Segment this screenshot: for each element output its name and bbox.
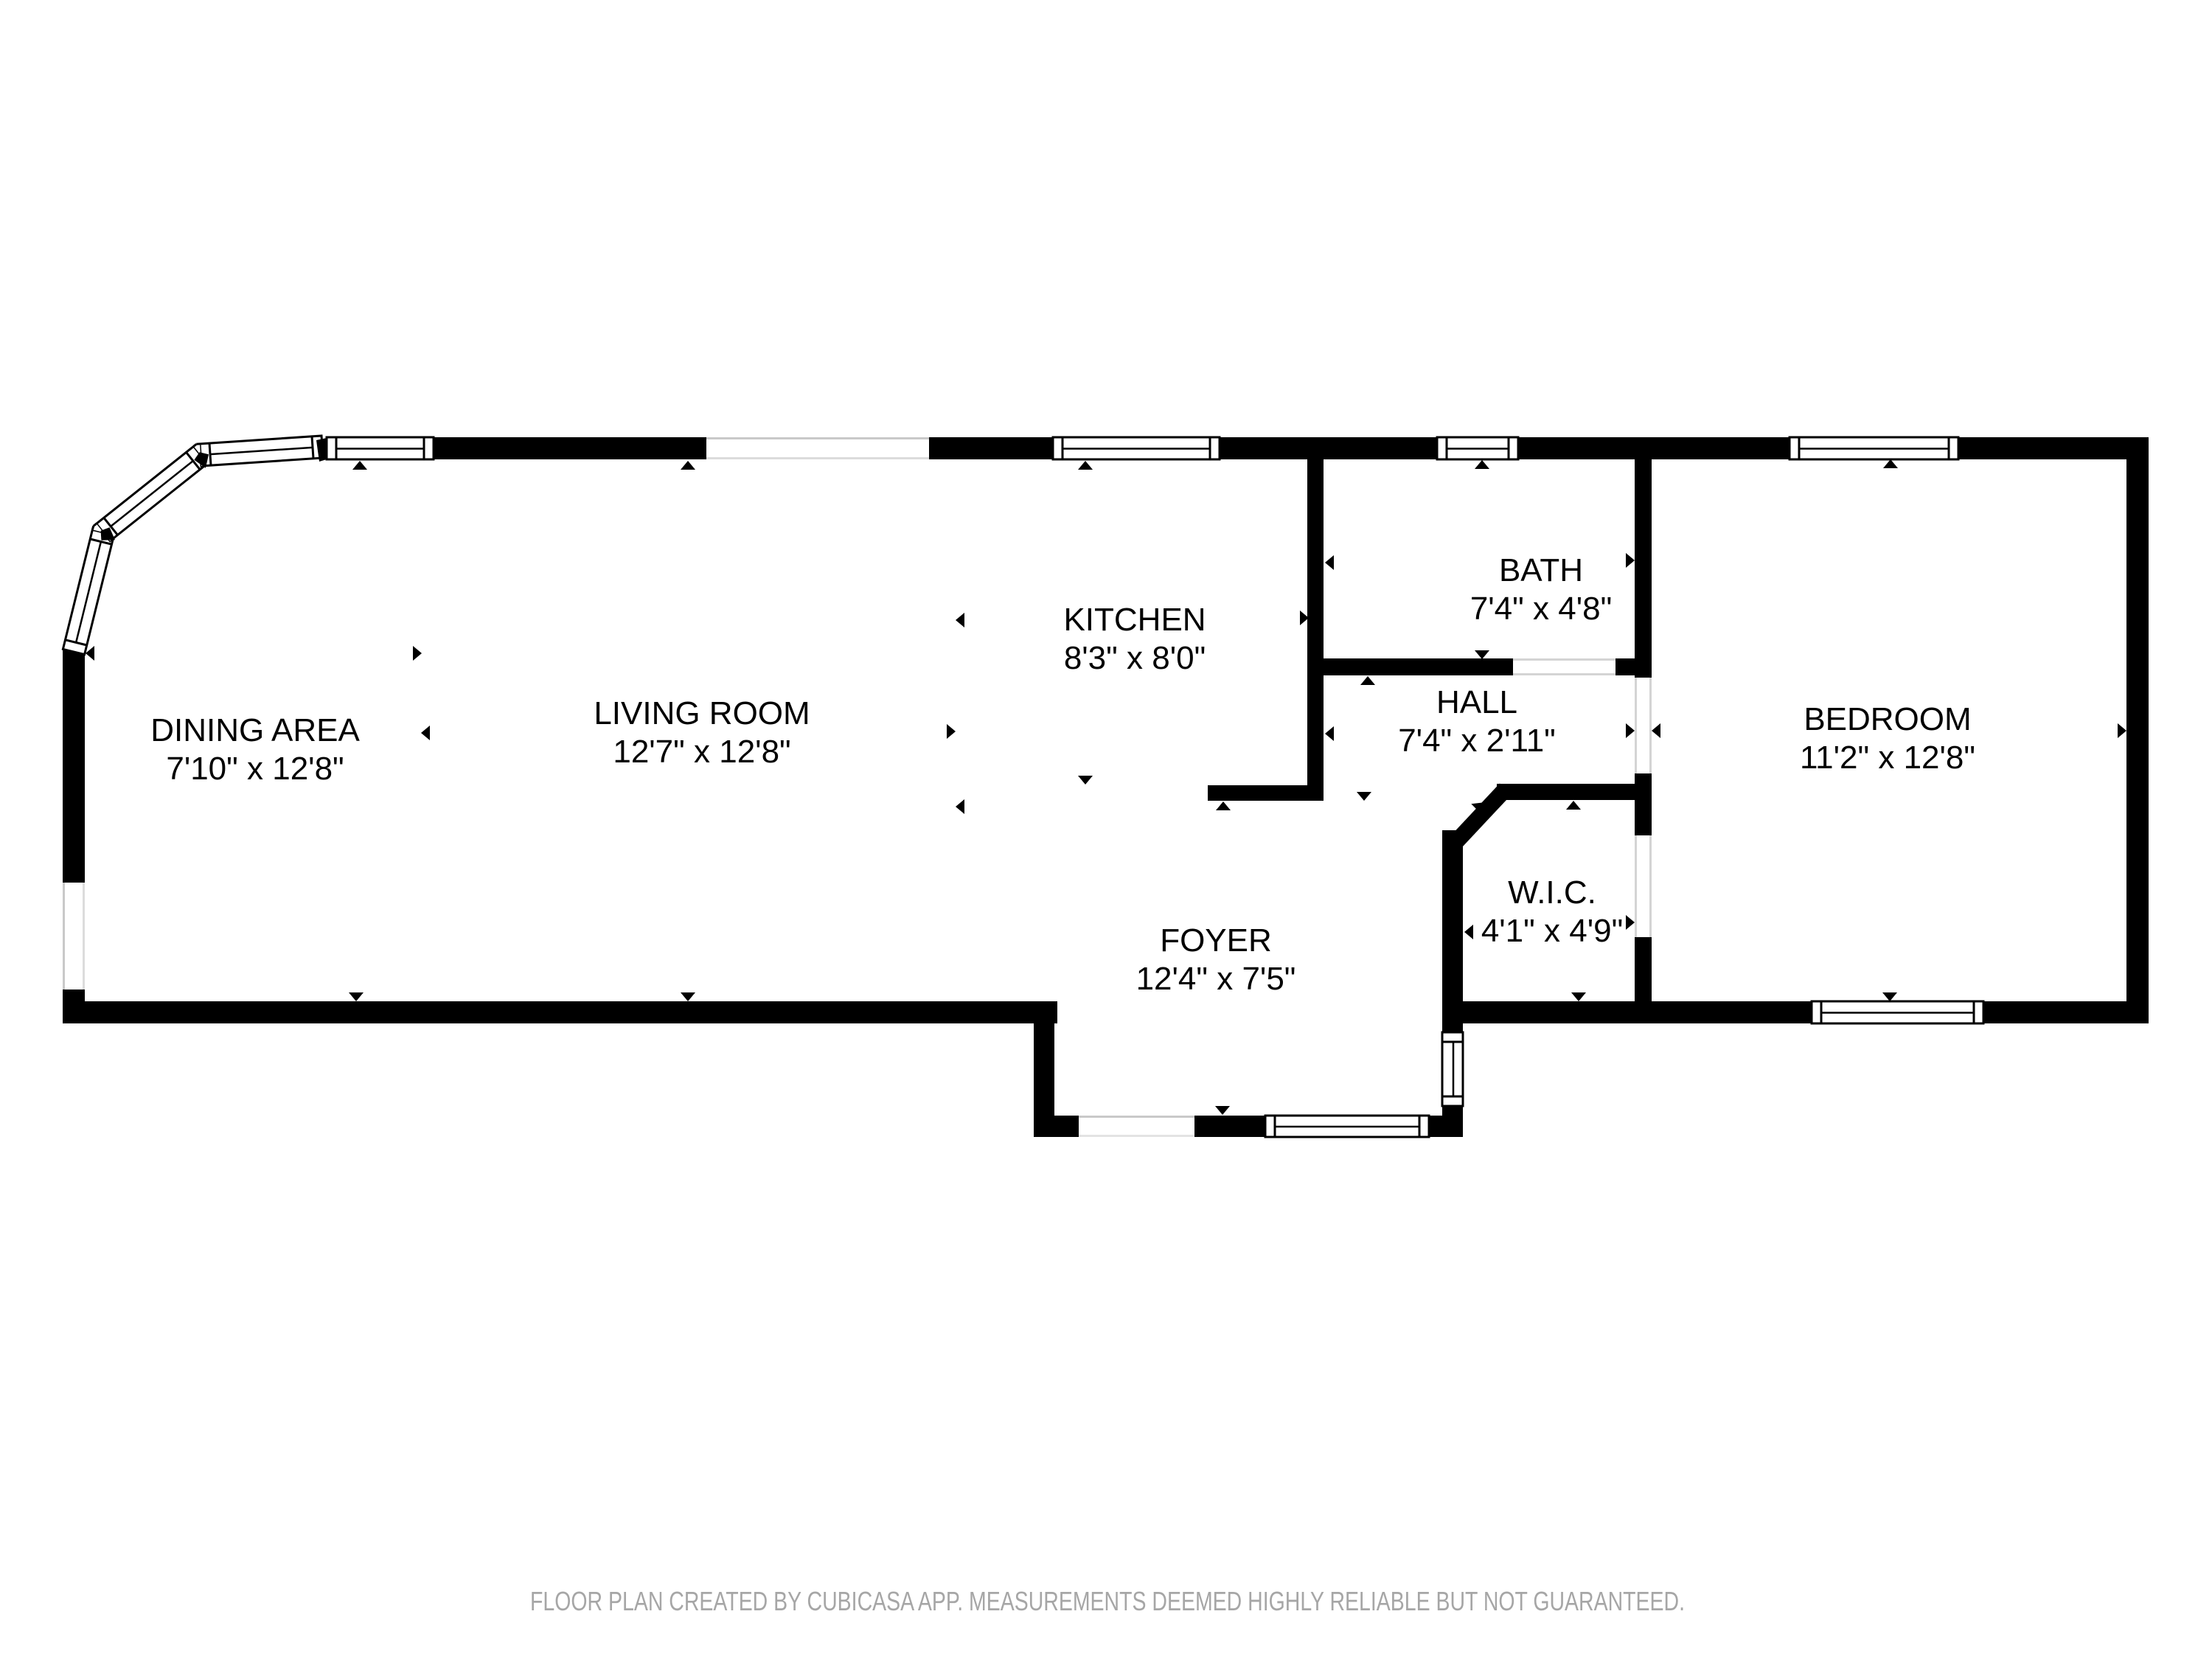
svg-text:4'1" x 4'9": 4'1" x 4'9" (1481, 913, 1623, 949)
svg-text:FOYER: FOYER (1160, 922, 1272, 959)
svg-text:7'4" x 2'11": 7'4" x 2'11" (1398, 723, 1556, 759)
svg-text:12'7" x 12'8": 12'7" x 12'8" (613, 734, 790, 770)
svg-text:DINING AREA: DINING AREA (150, 712, 360, 748)
svg-text:8'3" x 8'0": 8'3" x 8'0" (1064, 640, 1206, 676)
svg-text:HALL: HALL (1436, 684, 1517, 720)
svg-text:LIVING ROOM: LIVING ROOM (594, 695, 810, 731)
svg-text:W.I.C.: W.I.C. (1508, 874, 1596, 911)
svg-text:7'10" x 12'8": 7'10" x 12'8" (166, 751, 344, 787)
svg-text:BATH: BATH (1499, 552, 1583, 588)
svg-text:BEDROOM: BEDROOM (1804, 701, 1971, 737)
svg-text:7'4" x 4'8": 7'4" x 4'8" (1470, 591, 1612, 627)
svg-text:FLOOR PLAN CREATED BY CUBICASA: FLOOR PLAN CREATED BY CUBICASA APP. MEAS… (530, 1586, 1685, 1616)
svg-text:11'2" x 12'8": 11'2" x 12'8" (1800, 740, 1975, 776)
svg-text:KITCHEN: KITCHEN (1063, 602, 1206, 638)
svg-text:12'4" x 7'5": 12'4" x 7'5" (1136, 961, 1296, 997)
